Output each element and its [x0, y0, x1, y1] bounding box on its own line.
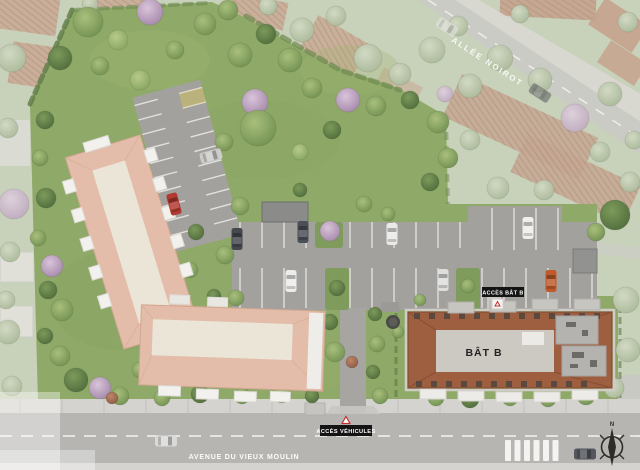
tree-icon — [419, 37, 445, 63]
tree-icon — [561, 104, 589, 132]
tree-icon — [256, 24, 276, 44]
tree-icon — [259, 0, 277, 15]
tree-icon — [323, 121, 341, 139]
tree-icon — [48, 46, 72, 70]
tree-icon — [600, 200, 630, 230]
tree-icon — [278, 48, 302, 72]
tree-icon — [421, 173, 439, 191]
tree-icon — [598, 82, 622, 106]
tree-icon — [36, 111, 54, 129]
tree-icon — [39, 281, 57, 299]
tree-icon — [216, 246, 234, 264]
car-icon — [574, 449, 596, 460]
tree-icon — [587, 223, 605, 241]
tree-icon — [0, 242, 20, 262]
car-icon — [387, 223, 398, 245]
tree-icon — [194, 13, 216, 35]
access-vehicles-label: ACCÈS VÉHICULES — [316, 427, 375, 435]
tree-icon — [414, 294, 426, 306]
car-icon — [286, 270, 297, 292]
tree-icon — [166, 41, 184, 59]
tree-icon — [366, 96, 386, 116]
site-plan-svg: ALLÉE NOIROT AVENUE DU VIEUX MOULIN ACCÈ… — [0, 0, 640, 470]
tree-icon — [372, 388, 388, 404]
car-icon — [298, 221, 309, 243]
tree-icon — [620, 172, 640, 192]
tree-icon — [292, 144, 308, 160]
tree-icon — [302, 78, 322, 98]
tree-icon — [36, 188, 56, 208]
tree-icon — [73, 7, 103, 37]
site-plan-rendering: ALLÉE NOIROT AVENUE DU VIEUX MOULIN ACCÈ… — [0, 0, 640, 470]
tree-icon — [37, 328, 53, 344]
car-icon — [232, 228, 243, 250]
refuse-shelter — [573, 249, 597, 273]
tree-icon — [326, 6, 346, 26]
tree-icon — [461, 279, 475, 293]
tree-icon — [389, 63, 411, 85]
tree-icon — [369, 336, 385, 352]
tree-icon — [320, 221, 340, 241]
building-b — [406, 299, 614, 402]
roof-skylight — [522, 332, 544, 345]
tree-icon — [188, 224, 204, 240]
tree-icon — [534, 180, 554, 200]
tree-icon — [32, 150, 48, 166]
tree-icon — [460, 130, 480, 150]
tree-icon — [51, 299, 73, 321]
tree-icon — [218, 0, 238, 20]
tree-icon — [108, 30, 128, 50]
tree-icon — [0, 320, 20, 344]
tree-icon — [354, 44, 382, 72]
tree-icon — [336, 88, 360, 112]
tree-icon — [346, 356, 358, 368]
car-icon — [155, 436, 177, 447]
tree-icon — [0, 44, 26, 72]
fade-overlay — [0, 450, 95, 470]
tree-icon — [290, 18, 314, 42]
tree-icon — [613, 287, 639, 313]
tree-icon — [356, 196, 372, 212]
roof-terraces — [556, 316, 606, 376]
tree-icon — [458, 74, 482, 98]
tree-icon — [0, 118, 18, 138]
tree-icon — [427, 111, 449, 133]
utility-box — [305, 403, 325, 415]
tree-icon — [228, 43, 252, 67]
tree-icon — [590, 142, 610, 162]
tree-icon — [368, 307, 382, 321]
tree-icon — [30, 230, 46, 246]
tree-icon — [616, 338, 640, 362]
tree-icon — [240, 110, 276, 146]
tree-icon — [106, 392, 118, 404]
bin-store — [381, 302, 399, 312]
tree-icon — [511, 5, 529, 23]
tree-icon — [401, 91, 419, 109]
tree-icon — [438, 148, 458, 168]
access-building-b-label: ACCÈS BÂT B — [482, 289, 523, 297]
tree-icon — [228, 290, 244, 306]
tree-icon — [137, 0, 163, 25]
compass-north-label: N — [610, 422, 614, 428]
tree-icon — [625, 131, 640, 149]
tree-icon — [91, 57, 109, 75]
tree-icon — [50, 346, 70, 366]
car-icon — [546, 270, 557, 292]
tree-icon — [293, 183, 307, 197]
tree-icon — [215, 133, 233, 151]
car-icon — [523, 217, 534, 239]
tree-icon — [325, 342, 345, 362]
car-icon — [438, 269, 449, 291]
tree-icon — [618, 12, 638, 32]
tree-icon — [0, 189, 29, 219]
building-b-label: BÂT B — [465, 346, 502, 359]
tree-icon — [64, 368, 88, 392]
tree-icon — [0, 291, 15, 309]
tree-icon — [41, 255, 63, 277]
street-name-bottom: AVENUE DU VIEUX MOULIN — [189, 454, 300, 461]
tree-icon — [381, 207, 395, 221]
tree-icon — [130, 70, 150, 90]
tree-icon — [329, 280, 345, 296]
tree-icon — [437, 86, 453, 102]
tree-icon — [366, 365, 380, 379]
building-a-south-wing — [138, 294, 326, 404]
bike-shelter — [262, 202, 308, 222]
tree-icon — [231, 197, 249, 215]
tree-icon — [487, 177, 509, 199]
